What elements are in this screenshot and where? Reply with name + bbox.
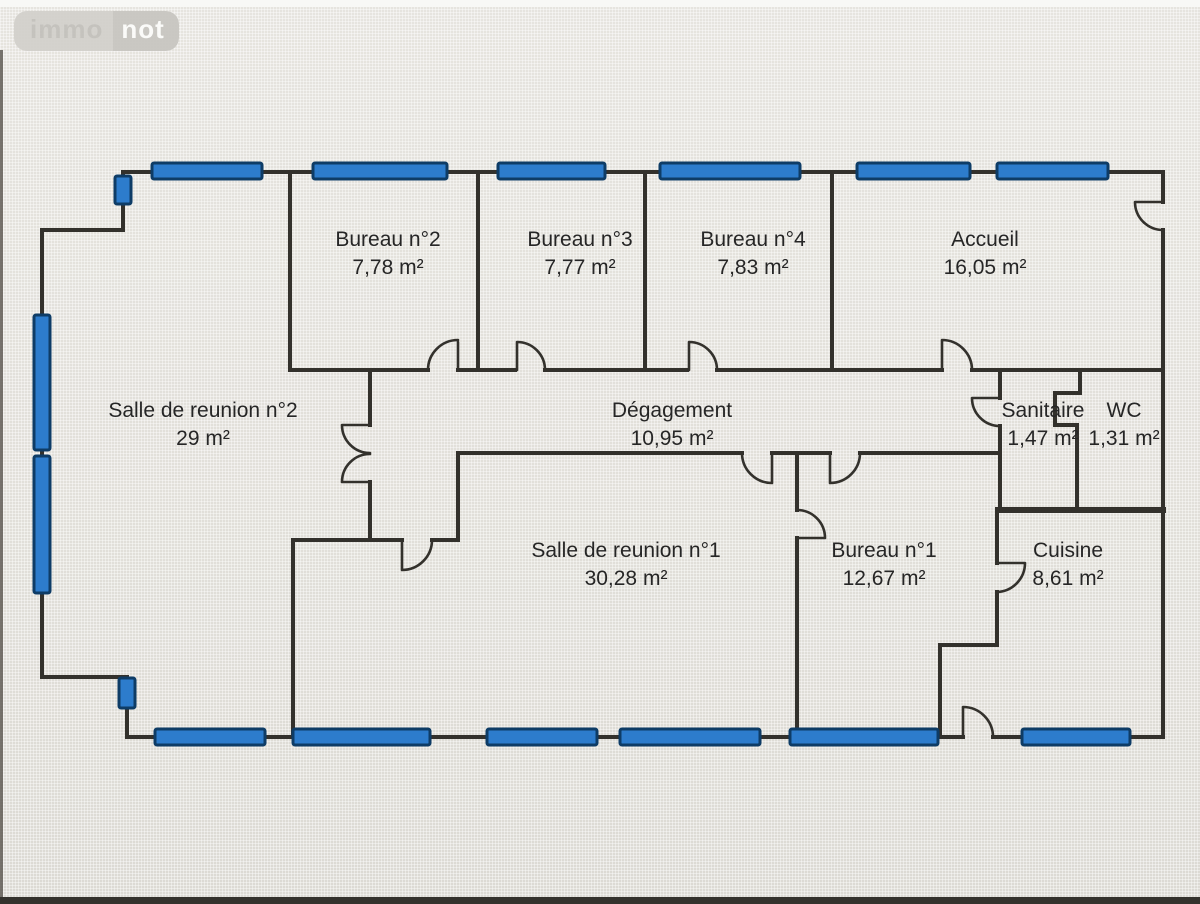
window [790,729,938,745]
window [997,163,1108,179]
door-bureau-3 [517,342,545,370]
room-label-bureau-1: Bureau n°1 12,67 m² [831,537,936,593]
room-area: 10,95 m² [612,425,732,453]
door-cuisine-exterior [963,707,993,737]
room-name: Cuisine [1032,537,1103,565]
floor-plan-photo: immo not [0,0,1200,904]
room-label-degagement: Dégagement 10,95 m² [612,397,732,453]
room-name: Salle de reunion n°1 [531,537,720,565]
wall-left-lower [42,677,127,737]
double-door-salle-2 [342,425,370,482]
window [119,678,135,708]
door-salle-1-west [402,540,432,570]
room-name: Bureau n°3 [527,226,632,254]
room-area: 12,67 m² [831,565,936,593]
room-name: WC [1088,397,1159,425]
room-name: Bureau n°4 [700,226,805,254]
room-label-sanitaire: Sanitaire 1,47 m² [1002,397,1085,453]
door-swings [342,202,1163,737]
room-area: 1,31 m² [1088,425,1159,453]
room-name: Bureau n°2 [335,226,440,254]
room-label-bureau-2: Bureau n°2 7,78 m² [335,226,440,282]
door-cuisine [997,563,1025,592]
window [115,176,131,204]
window [34,315,50,450]
photo-edge-bottom [0,897,1200,904]
room-area: 1,47 m² [1002,425,1085,453]
window [152,163,262,179]
room-label-salle-reunion-1: Salle de reunion n°1 30,28 m² [531,537,720,593]
entry-door [1135,202,1163,230]
room-name: Bureau n°1 [831,537,936,565]
room-name: Sanitaire [1002,397,1085,425]
window [155,729,265,745]
room-name: Salle de reunion n°2 [108,397,297,425]
room-area: 29 m² [108,425,297,453]
room-label-salle-reunion-2: Salle de reunion n°2 29 m² [108,397,297,453]
room-area: 16,05 m² [944,254,1027,282]
door-bureau-1-top [830,453,860,483]
window [620,729,760,745]
window [660,163,800,179]
room-name: Accueil [944,226,1027,254]
window [34,456,50,593]
window [857,163,970,179]
room-name: Dégagement [612,397,732,425]
window [293,729,430,745]
room-area: 7,78 m² [335,254,440,282]
door-bureau-1-side [797,510,825,538]
door-bureau-4 [689,342,717,370]
window [1022,729,1130,745]
room-label-accueil: Accueil 16,05 m² [944,226,1027,282]
window [487,729,597,745]
room-label-cuisine: Cuisine 8,61 m² [1032,537,1103,593]
door-sanitaire [972,398,1000,426]
room-label-wc: WC 1,31 m² [1088,397,1159,453]
room-area: 7,83 m² [700,254,805,282]
room-label-bureau-4: Bureau n°4 7,83 m² [700,226,805,282]
window [498,163,605,179]
room-area: 8,61 m² [1032,565,1103,593]
photo-edge-left [0,50,3,904]
door-bureau-2 [428,340,458,370]
room-area: 7,77 m² [527,254,632,282]
room-label-bureau-3: Bureau n°3 7,77 m² [527,226,632,282]
door-salle-1-east [742,453,772,483]
room-area: 30,28 m² [531,565,720,593]
window [313,163,447,179]
door-accueil [942,340,972,370]
